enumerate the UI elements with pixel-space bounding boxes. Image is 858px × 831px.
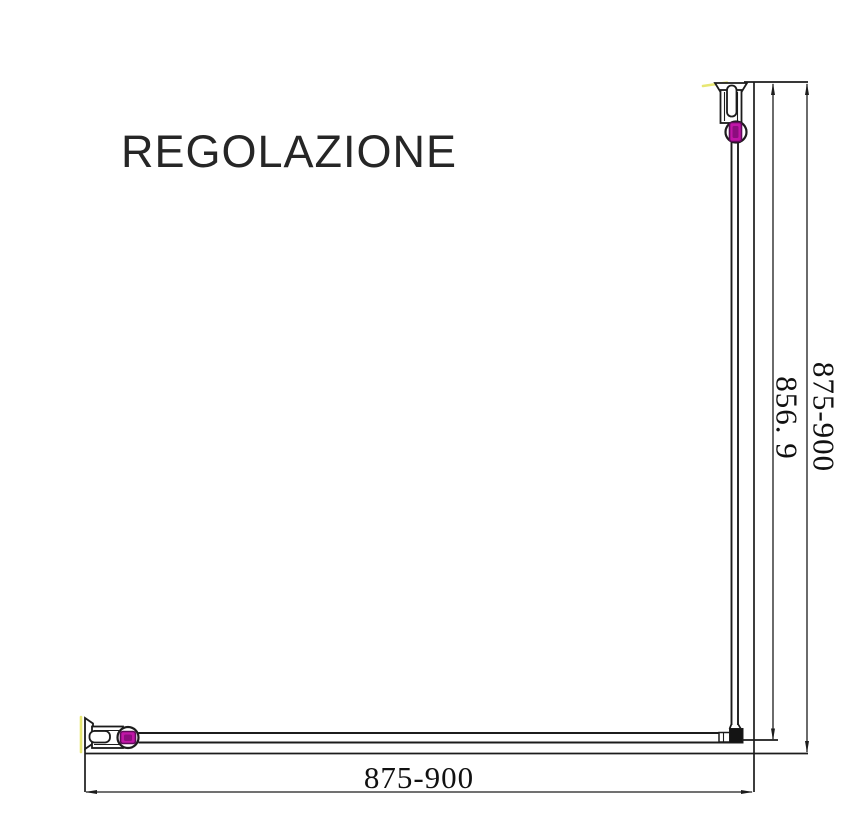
- clamp-pad-inner: [124, 735, 132, 742]
- arrow-left-icon: [85, 790, 97, 794]
- arrow-up-icon: [771, 83, 775, 95]
- arrow-up-icon: [805, 83, 809, 95]
- arrow-down-icon: [805, 741, 809, 753]
- glass-panel-horizontal: [139, 733, 730, 743]
- bracket-slot: [90, 731, 111, 743]
- wall-profile-clamp-icon-left: [85, 718, 139, 749]
- dimension-label-glass-height: 856. 9: [770, 376, 805, 460]
- clamp-pad-inner: [733, 126, 739, 138]
- corner-connector-icon: [719, 724, 743, 743]
- glass-panel-vertical: [732, 142, 739, 725]
- technical-drawing-page: REGOLAZIONE: [0, 0, 858, 831]
- wall-profile-clamp-icon-top: [715, 83, 747, 143]
- arrow-down-icon: [771, 729, 775, 741]
- shower-enclosure-adjustment-drawing: 856. 9 875-900 875-900: [0, 0, 858, 831]
- dimension-label-bottom-width: 875-900: [364, 760, 474, 795]
- corner-fitting: [719, 733, 731, 743]
- dimension-label-outer-height: 875-900: [807, 362, 842, 472]
- corner-block: [730, 729, 744, 744]
- dimension-height-glass: 856. 9: [770, 83, 805, 741]
- arrow-right-icon: [741, 790, 753, 794]
- dimension-width-bottom: 875-900: [85, 760, 753, 795]
- bracket-slot: [727, 86, 737, 117]
- dimension-height-outer: 875-900: [805, 83, 842, 753]
